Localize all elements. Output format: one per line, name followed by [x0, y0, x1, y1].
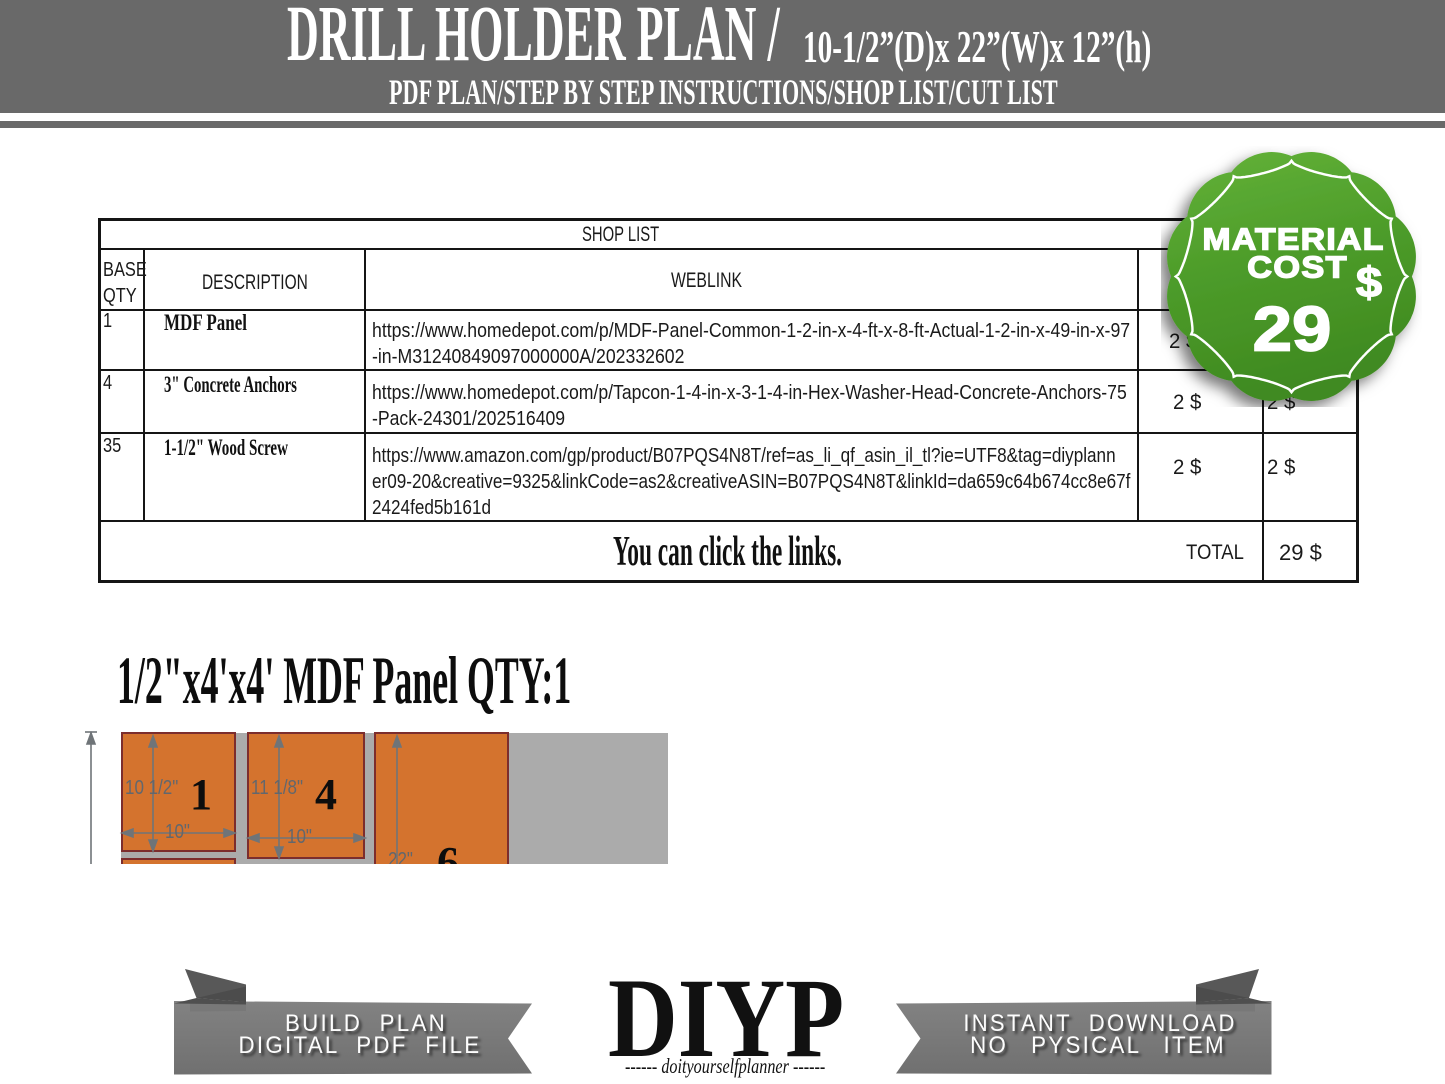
svg-text:$: $ [1356, 258, 1382, 307]
svg-text:COST: COST [1247, 250, 1348, 284]
svg-text:29: 29 [1253, 294, 1332, 365]
